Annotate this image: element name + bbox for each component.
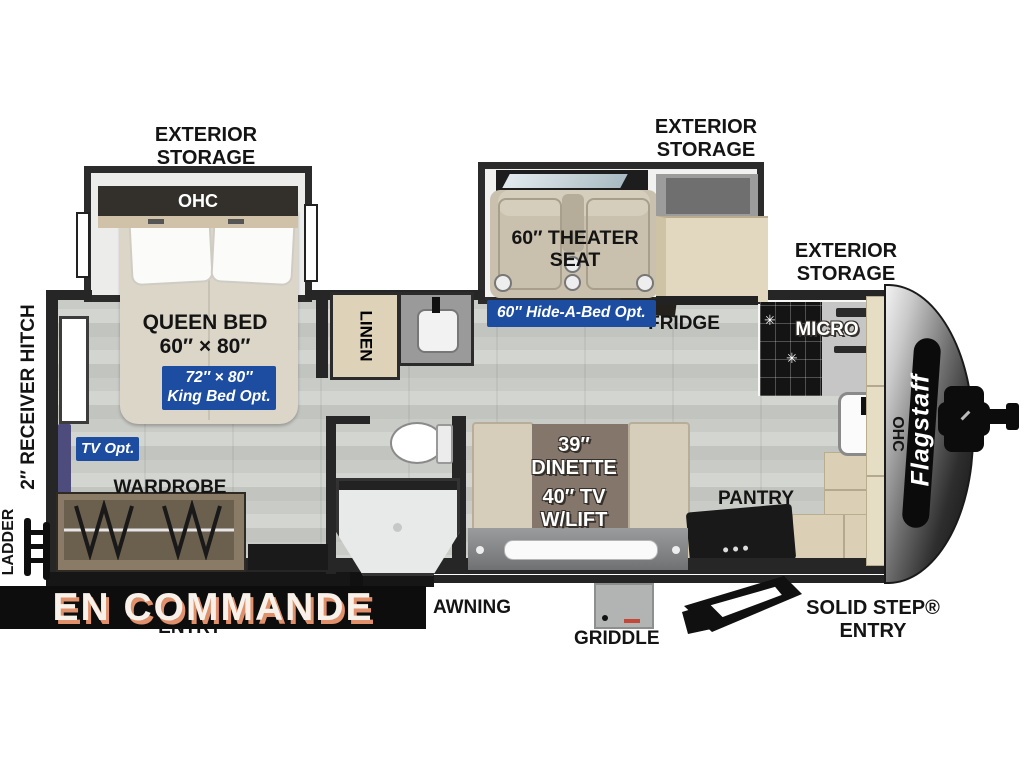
queen-bed-label: QUEEN BED (130, 311, 280, 335)
griddle-detail (624, 619, 640, 623)
griddle-label: GRIDDLE (574, 628, 658, 650)
vanity-faucet-icon (432, 297, 440, 313)
linen-label: LINEN (355, 311, 375, 362)
bedroom-shelf (98, 216, 298, 228)
shower (336, 478, 460, 576)
exterior-storage-label-bedroom: EXTERIOR STORAGE (146, 124, 266, 170)
status-banner-text: EN COMMANDE (53, 586, 374, 630)
theater-seat-label: 60″ THEATER SEAT (490, 227, 660, 271)
fridge-inner (666, 178, 750, 214)
tv-lift-bar (504, 540, 658, 560)
shower-drain (393, 523, 402, 532)
tv-option-tag: TV Opt. (76, 437, 139, 461)
awning-label: AWNING (432, 597, 512, 619)
dot (723, 547, 728, 552)
linen-closet: LINEN (330, 292, 400, 380)
ladder-icon (20, 516, 54, 580)
vanity-sink (417, 309, 459, 353)
shelf-bracket (228, 219, 244, 224)
hide-a-bed-option-tag: 60″ Hide-A-Bed Opt. (487, 300, 656, 327)
dot (743, 545, 748, 550)
cupholder-icon (636, 274, 654, 292)
fridge-label: FRIDGE (644, 313, 724, 335)
exterior-storage-label-front: EXTERIOR STORAGE (786, 240, 906, 286)
window-glass (502, 174, 627, 188)
bedroom-window-right (304, 204, 318, 282)
bedroom-ohc-cabinet: OHC (98, 186, 298, 216)
exterior-storage-label-theater: EXTERIOR STORAGE (646, 116, 766, 162)
stove-cooktop: ✳ ✳ (760, 302, 822, 396)
receiver-hitch-label: 2″ RECEIVER HITCH (18, 304, 40, 489)
bath-vanity (398, 292, 474, 366)
queen-bed-size-label: 60″ × 80″ (130, 335, 280, 359)
solid-step-entry-label: SOLID STEP® ENTRY (794, 597, 952, 643)
shelf-bracket (148, 219, 164, 224)
status-banner: EN COMMANDE (0, 586, 426, 629)
front-ohc-label: OHC (888, 416, 906, 452)
console-bolt (476, 546, 484, 554)
bedroom-window-left (76, 212, 90, 278)
burner-icon: ✳ (786, 350, 798, 367)
king-bed-option-tag: 72″ × 80″ King Bed Opt. (162, 366, 276, 410)
dinette-label: 39″ DINETTE (524, 434, 624, 480)
wall-bed-bath (316, 290, 328, 378)
floorplan: OHC LINEN (0, 0, 1024, 768)
micro-label: MICRO (787, 319, 867, 341)
wall-bath-top (326, 416, 370, 424)
fridge-vent (656, 296, 758, 305)
fridge-top (656, 174, 758, 220)
fridge (656, 216, 768, 302)
toilet-tank (436, 424, 453, 464)
console-bolt (672, 546, 680, 554)
pantry-label: PANTRY (711, 488, 801, 510)
brand-logo: Flagstaff (907, 374, 936, 487)
tv-lift-console (468, 528, 688, 570)
hanger-zigzag-icon (64, 500, 234, 560)
cupholder-icon (564, 274, 581, 291)
cupholder-icon (494, 274, 512, 292)
theater-window (496, 170, 648, 192)
wardrobe-label: WARDROBE (110, 477, 230, 499)
rear-window (59, 316, 89, 424)
ladder-label: LADDER (0, 509, 18, 576)
dot (733, 546, 738, 551)
bedroom-ohc-label: OHC (178, 191, 218, 212)
wardrobe (56, 492, 246, 572)
dinette-bench-right (628, 422, 690, 538)
rear-entry-mat (248, 544, 328, 570)
griddle-knob (602, 615, 608, 621)
tv-lift-label: 40″ TV W/LIFT (524, 486, 624, 532)
shower-door-track (339, 481, 457, 490)
hitch-coupler (1006, 403, 1019, 430)
burner-icon: ✳ (764, 312, 776, 329)
griddle (594, 583, 654, 629)
